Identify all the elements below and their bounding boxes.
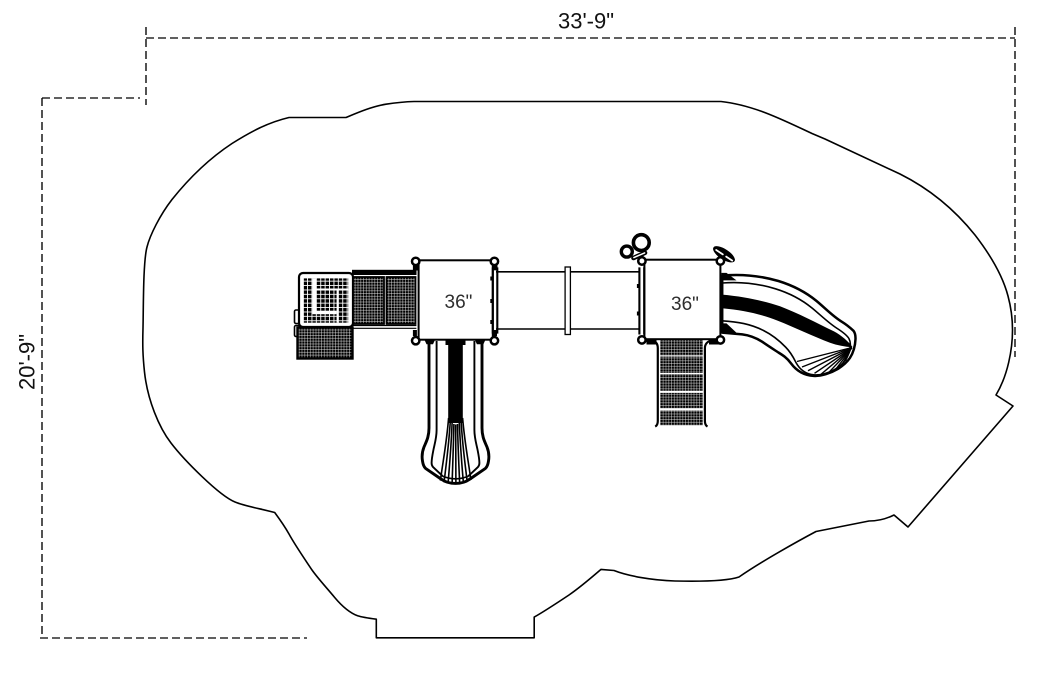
svg-text:20'-9": 20'-9": [15, 334, 40, 390]
svg-text:33'-9": 33'-9": [558, 9, 614, 34]
svg-text:36": 36": [445, 292, 473, 313]
svg-text:36": 36": [671, 294, 699, 315]
